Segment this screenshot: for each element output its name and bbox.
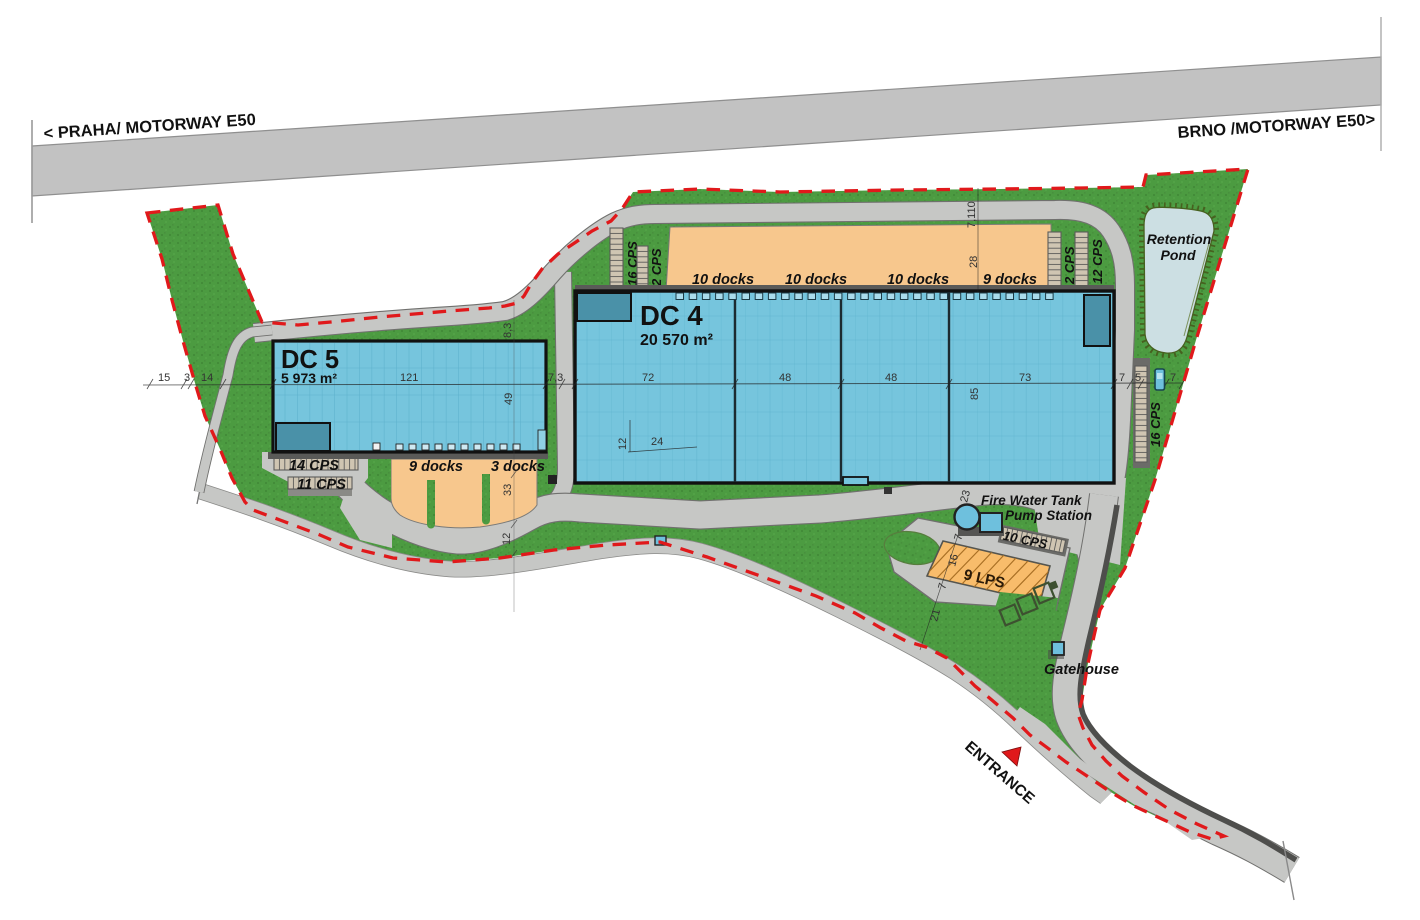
svg-text:28: 28 [968, 256, 980, 268]
svg-text:2 CPS: 2 CPS [649, 248, 664, 287]
svg-text:15: 15 [158, 372, 170, 384]
svg-text:7,3: 7,3 [548, 372, 563, 384]
svg-text:Pump Station: Pump Station [1005, 508, 1092, 523]
svg-text:8,3: 8,3 [502, 323, 514, 338]
svg-text:24: 24 [651, 436, 663, 448]
svg-text:7,110: 7,110 [966, 201, 978, 228]
svg-text:5 973 m²: 5 973 m² [281, 370, 337, 386]
svg-text:121: 121 [400, 372, 418, 384]
svg-text:12 CPS: 12 CPS [1090, 239, 1105, 284]
svg-text:72: 72 [642, 372, 654, 384]
svg-text:49: 49 [503, 393, 515, 405]
svg-text:11 CPS: 11 CPS [297, 477, 346, 493]
svg-text:Fire Water Tank: Fire Water Tank [981, 493, 1083, 508]
svg-text:73: 73 [1019, 372, 1031, 384]
svg-text:20 570 m²: 20 570 m² [640, 332, 713, 349]
svg-text:12: 12 [501, 533, 513, 545]
svg-text:9 docks: 9 docks [983, 272, 1037, 288]
svg-text:16 CPS: 16 CPS [1148, 402, 1163, 447]
svg-text:5: 5 [1135, 372, 1141, 384]
svg-text:33: 33 [502, 484, 514, 496]
svg-text:12: 12 [617, 438, 629, 450]
svg-text:14 CPS: 14 CPS [289, 458, 339, 474]
svg-text:7: 7 [1119, 372, 1125, 384]
svg-text:10 docks: 10 docks [692, 272, 754, 288]
svg-text:10 docks: 10 docks [887, 272, 949, 288]
svg-text:7: 7 [1170, 372, 1176, 384]
svg-text:Gatehouse: Gatehouse [1044, 662, 1119, 678]
svg-text:Retention: Retention [1147, 231, 1212, 247]
svg-text:85: 85 [969, 388, 981, 400]
svg-text:48: 48 [885, 372, 897, 384]
svg-text:14: 14 [201, 372, 213, 384]
svg-text:3: 3 [184, 372, 190, 384]
svg-text:9 docks: 9 docks [409, 459, 463, 475]
svg-text:DC 4: DC 4 [640, 300, 703, 331]
svg-text:10 docks: 10 docks [785, 272, 847, 288]
svg-text:Pond: Pond [1161, 247, 1196, 263]
svg-text:48: 48 [779, 372, 791, 384]
svg-text:3 docks: 3 docks [491, 459, 545, 475]
